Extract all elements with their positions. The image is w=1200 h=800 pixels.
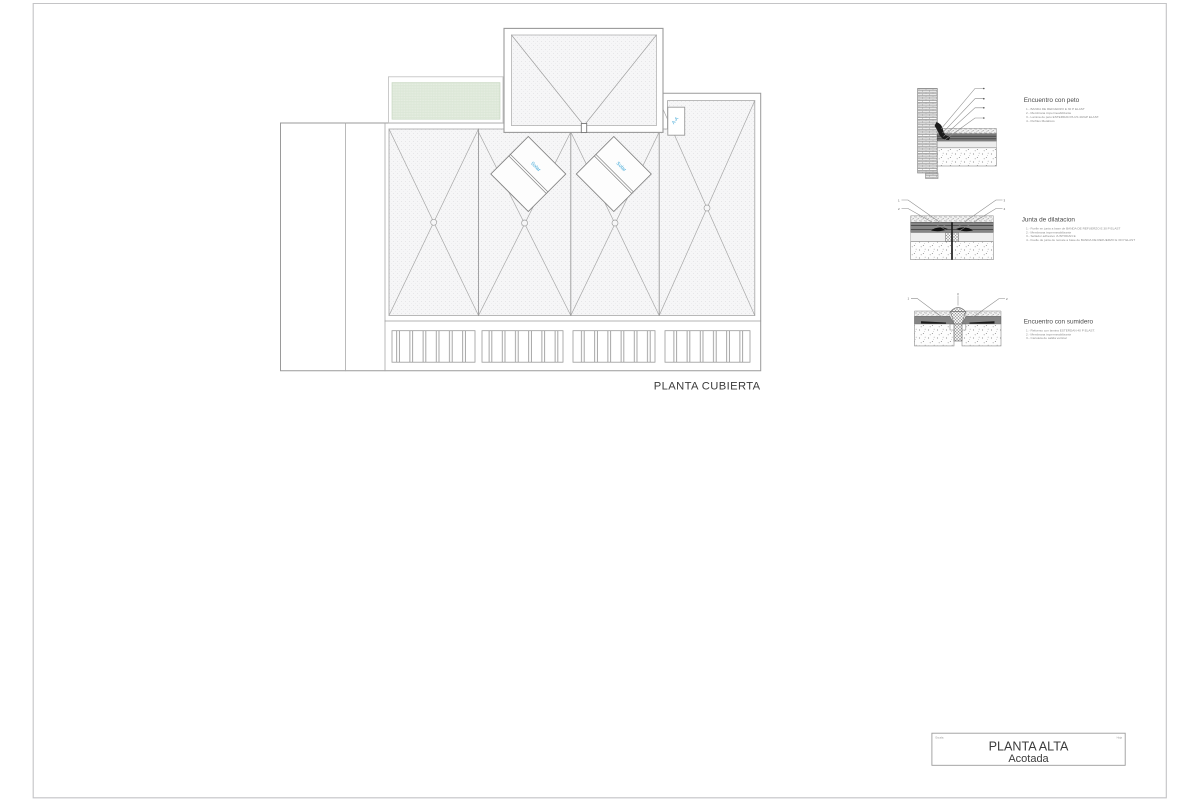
svg-text:PLANTA CUBIERTA: PLANTA CUBIERTA — [654, 381, 761, 393]
svg-text:Junta de dilatacion: Junta de dilatacion — [1022, 217, 1076, 224]
svg-text:Encuentro con peto: Encuentro con peto — [1024, 97, 1080, 104]
svg-text:PLANTA ALTA: PLANTA ALTA — [989, 740, 1069, 754]
svg-text:Acotada: Acotada — [1008, 753, 1049, 765]
svg-text:Escala:: Escala: — [936, 735, 945, 739]
svg-text:4.- Perfiles Metalicos: 4.- Perfiles Metalicos — [1026, 119, 1055, 123]
svg-text:4.- Fuelle de junta de re: 4.- Fuelle de junta de remate a base de … — [1026, 238, 1135, 242]
svg-text:Hoja: Hoja — [1117, 735, 1123, 739]
svg-text:3.- Cazoleta de salida ver: 3.- Cazoleta de salida vertical — [1026, 336, 1067, 340]
svg-text:Encuentro con sumidero: Encuentro con sumidero — [1024, 319, 1094, 326]
